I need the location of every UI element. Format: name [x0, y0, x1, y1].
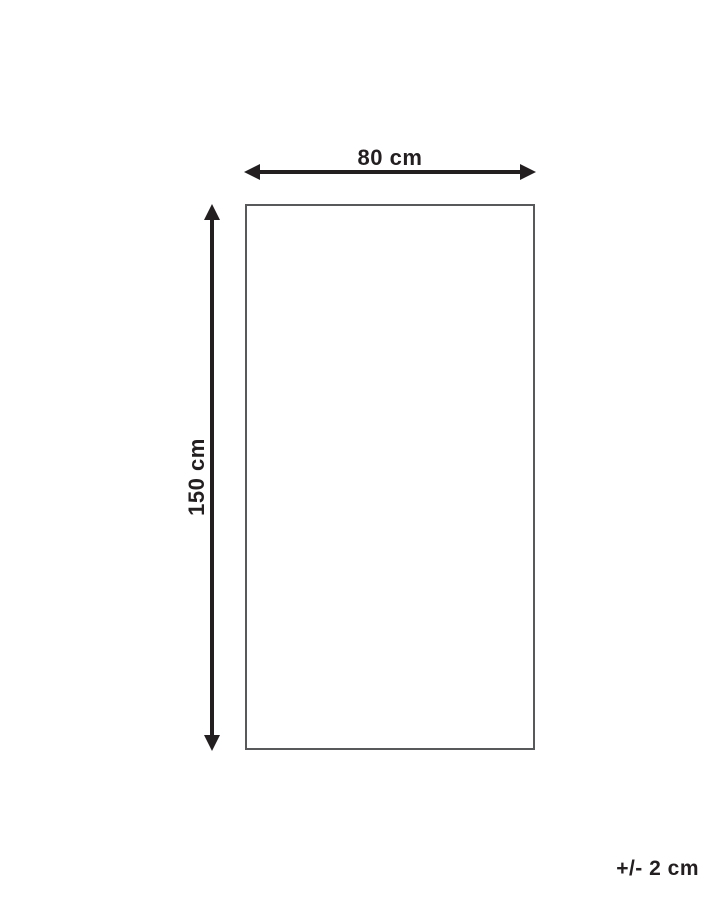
- tolerance-label: +/- 2 cm: [616, 858, 699, 879]
- width-dimension-label: 80 cm: [245, 147, 535, 169]
- diagram-drawing: [0, 0, 720, 900]
- product-outline-rect: [246, 205, 534, 749]
- height-dimension-label: 150 cm: [186, 438, 208, 516]
- height-arrow-top-arrowhead-icon: [204, 204, 220, 220]
- height-arrow-bottom-arrowhead-icon: [204, 735, 220, 751]
- dimension-diagram: 80 cm 150 cm +/- 2 cm: [0, 0, 720, 900]
